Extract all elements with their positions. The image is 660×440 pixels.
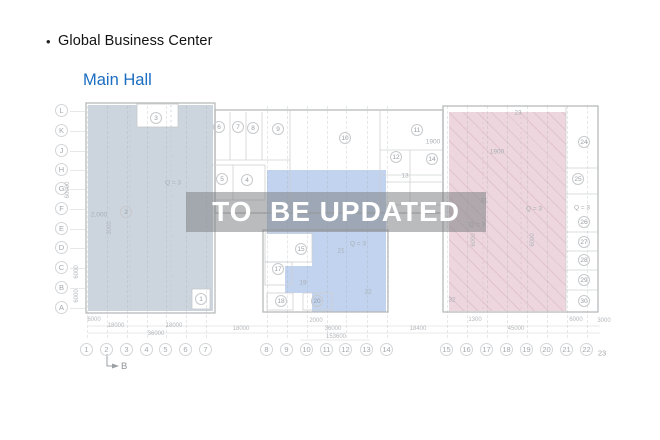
col-axis-label: 18 [500, 343, 513, 356]
room-number: 1 [195, 293, 207, 305]
room-number: 6 [213, 121, 225, 133]
col-axis-label: 9 [280, 343, 293, 356]
room-number: 7 [232, 121, 244, 133]
dimension-label: 60000 [65, 182, 71, 199]
dimension-label: 18000 [108, 323, 125, 329]
dimension-label: 153600 [326, 334, 346, 340]
dimension-label: 1300 [468, 317, 481, 323]
grid-line [87, 106, 88, 338]
room-number: 25 [572, 173, 584, 185]
section-marker-b: B [100, 353, 134, 377]
plan-annotation: Q = 3 [350, 241, 366, 248]
plan-annotation: 1900 [426, 139, 440, 146]
plan-annotation: 19 [299, 280, 306, 287]
grid-line [147, 106, 148, 338]
hall-tab-main-hall[interactable]: Main Hall [83, 71, 152, 90]
row-axis-label: B [55, 281, 68, 294]
row-axis-label: J [55, 144, 68, 157]
plan-annotation: 22 [364, 289, 371, 296]
plan-annotation: 1900 [490, 149, 504, 156]
plan-annotation: Q = 3 [526, 206, 542, 213]
dimension-label: 6000 [74, 265, 80, 278]
room-number: 18 [275, 295, 287, 307]
page-title: Global Business Center [58, 33, 213, 49]
dimension-label: 36000 [148, 331, 165, 337]
axis-tick [70, 308, 85, 309]
room-number: 24 [578, 136, 590, 148]
col-axis-label: 1 [80, 343, 93, 356]
col-axis-label: 13 [360, 343, 373, 356]
col-axis-label: 19 [520, 343, 533, 356]
axis-tick [70, 248, 85, 249]
col-axis-label: 4 [140, 343, 153, 356]
grid-line [527, 106, 528, 338]
axis-tick [70, 131, 85, 132]
row-axis-label: H [55, 163, 68, 176]
row-axis-label: A [55, 301, 68, 314]
room-number: 29 [578, 274, 590, 286]
dimension-label: 3000 [107, 221, 113, 234]
col-axis-label: 2 [100, 343, 113, 356]
dimension-label: 18000 [233, 326, 250, 332]
plan-annotation: 32 [448, 297, 455, 304]
room-number: 2 [120, 206, 132, 218]
col-axis-label: 16 [460, 343, 473, 356]
grid-line [547, 106, 548, 338]
plan-annotation: Q = 3 [165, 180, 181, 187]
section-arrow-icon [100, 353, 134, 377]
room-number: 30 [578, 295, 590, 307]
grid-line [127, 106, 128, 338]
col-axis-label: 8 [260, 343, 273, 356]
col-axis-label: 10 [300, 343, 313, 356]
col-axis-label: 22 [580, 343, 593, 356]
col-axis-label: 11 [320, 343, 333, 356]
page: • Global Business Center Main Hall [0, 0, 660, 440]
grid-line [487, 106, 488, 338]
col-axis-label: 15 [440, 343, 453, 356]
room-number: 26 [578, 216, 590, 228]
axis-tick [70, 170, 85, 171]
dimension-label: 6000 [569, 317, 582, 323]
dimension-label: 36000 [325, 326, 342, 332]
row-axis-label: C [55, 261, 68, 274]
col-axis-label: 3 [120, 343, 133, 356]
room-number: 15 [295, 243, 307, 255]
room-number: 5 [216, 173, 228, 185]
dimension-label: 18000 [166, 323, 183, 329]
dimension-label: 45000 [508, 326, 525, 332]
dimension-label: 6000 [74, 289, 80, 302]
plan-annotation: 21 [337, 248, 344, 255]
col-axis-label: 12 [339, 343, 352, 356]
grid-line [166, 106, 167, 338]
room-number: 9 [272, 123, 284, 135]
watermark-text: TO BE UPDATED [212, 196, 460, 228]
room-number: 17 [272, 263, 284, 275]
axis-tick [70, 189, 85, 190]
dimension-label: 6000 [530, 233, 536, 246]
room-number: 10 [339, 132, 351, 144]
col-axis-label: 14 [380, 343, 393, 356]
row-axis-label: D [55, 241, 68, 254]
col-axis-label: 17 [480, 343, 493, 356]
plan-annotation: Q = 3 [574, 205, 590, 212]
col-axis-label: 7 [199, 343, 212, 356]
col-axis-label: 6 [179, 343, 192, 356]
row-axis-label: K [55, 124, 68, 137]
axis-tick [70, 151, 85, 152]
col-axis-label: 21 [560, 343, 573, 356]
room-number: 28 [578, 254, 590, 266]
room-number: 3 [150, 112, 162, 124]
room-number: 11 [411, 124, 423, 136]
col-axis-label: 5 [159, 343, 172, 356]
axis-tick [70, 209, 85, 210]
plan-annotation: 13 [401, 173, 408, 180]
axis-tick [70, 229, 85, 230]
dimension-label: 6000 [471, 233, 477, 246]
dimension-label: 2000 [309, 318, 322, 324]
watermark-band: TO BE UPDATED [186, 192, 486, 232]
room-number: 8 [247, 122, 259, 134]
plan-annotation: 23 [514, 110, 521, 117]
room-number: 12 [390, 151, 402, 163]
room-number: 27 [578, 236, 590, 248]
dimension-label: 3000 [597, 318, 610, 324]
room-number: 4 [241, 174, 253, 186]
grid-line [567, 106, 568, 338]
row-axis-label: L [55, 104, 68, 117]
room-number: 14 [426, 153, 438, 165]
room-number: 20 [311, 295, 323, 307]
section-marker-label: B [121, 361, 127, 372]
title-bullet: • [46, 34, 51, 49]
col-axis-label: 23 [598, 349, 606, 358]
grid-line [507, 106, 508, 338]
row-axis-label: E [55, 222, 68, 235]
col-axis-label: 20 [540, 343, 553, 356]
plan-annotation: 2,000 [91, 212, 107, 219]
dimension-label: 18400 [410, 326, 427, 332]
dimension-label: 6000 [87, 317, 100, 323]
row-axis-label: F [55, 202, 68, 215]
axis-tick [70, 111, 85, 112]
